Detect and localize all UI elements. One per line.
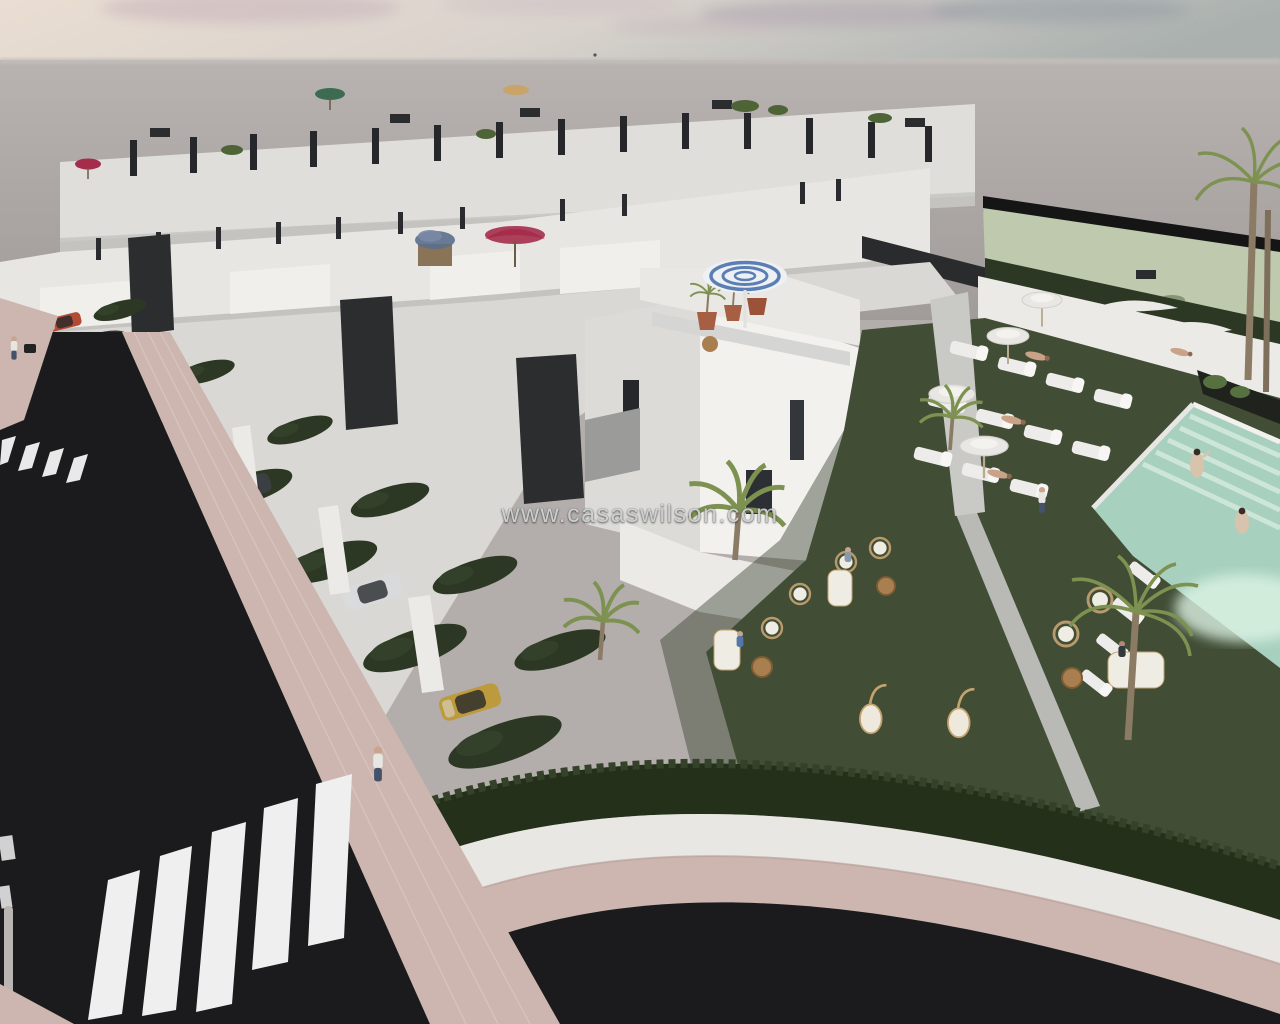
- palm-trunk: [1266, 210, 1268, 392]
- wood-stool: [702, 336, 718, 352]
- luggage: [24, 344, 36, 353]
- horizon-line: [0, 58, 1280, 64]
- window-slit: [790, 400, 804, 460]
- bird: [593, 53, 596, 56]
- wicker-sofa: [714, 630, 740, 670]
- seated-person: [737, 631, 744, 647]
- yellow-car: [437, 681, 503, 722]
- pedestrian: [373, 746, 383, 781]
- wicker-sofa: [828, 570, 852, 606]
- seated-person: [1118, 641, 1125, 657]
- stair-landing: [585, 408, 640, 482]
- tan-umbrella: [503, 85, 529, 95]
- cloud: [610, 18, 790, 34]
- seated-person: [845, 547, 852, 562]
- pedestrian: [11, 336, 17, 359]
- render-image: www.casaswilson.com: [0, 0, 1280, 1024]
- terrace-planter-lavender: [415, 230, 455, 266]
- watermark-text: www.casaswilson.com: [0, 500, 1280, 529]
